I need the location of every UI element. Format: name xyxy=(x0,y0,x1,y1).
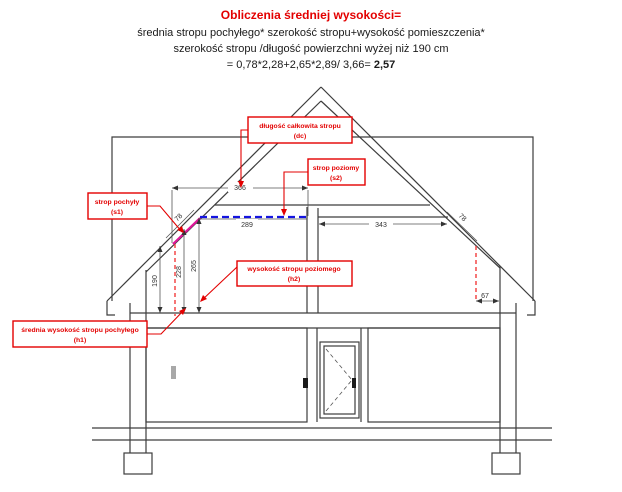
dim-right-offset: 67 xyxy=(476,293,499,304)
ground-floor xyxy=(146,328,500,422)
dim-228: 228 xyxy=(176,266,183,278)
label-h2: wysokość stropu poziomego (h2) xyxy=(237,261,352,286)
label-dc-line2: (dc) xyxy=(294,133,306,140)
label-s2-line1: strop poziomy xyxy=(313,165,360,172)
label-s1: strop pochyły (s1) xyxy=(88,193,147,219)
label-s1-line1: strop pochyły xyxy=(95,199,140,206)
formula-line-1: średnia stropu pochyłego* szerokość stro… xyxy=(0,25,622,41)
label-s1-line2: (s1) xyxy=(111,209,123,216)
dim-366: 366 xyxy=(234,185,246,192)
dim-horizontal-height: 265 xyxy=(191,218,202,313)
dim-height-190: 190 xyxy=(152,246,163,313)
room-right xyxy=(368,328,500,422)
label-h2-line1: wysokość stropu poziomego xyxy=(246,266,340,273)
dim-right-room: 343 xyxy=(319,219,447,229)
formula-expression: = 0,78*2,28+2,65*2,89/ 3,66= xyxy=(227,59,374,71)
wall-mark-right xyxy=(352,378,356,388)
door-handle-mark xyxy=(171,366,176,379)
leader-lines xyxy=(147,130,308,334)
label-s2: strop poziomy (s2) xyxy=(308,159,365,185)
label-h1: średnia wysokość stropu pochyłego (h1) xyxy=(13,321,147,347)
calculation-header: Obliczenia średniej wysokości= średnia s… xyxy=(0,8,622,73)
dim-343: 343 xyxy=(375,222,387,229)
label-dc: długość całkowita stropu (dc) xyxy=(248,117,352,143)
window-swing-symbol xyxy=(326,349,352,411)
dim-190: 190 xyxy=(152,275,159,287)
dim-289: 289 xyxy=(241,222,253,229)
formula-line-2: szerokość stropu /długość powierzchni wy… xyxy=(0,41,622,57)
dim-total-length: 366 xyxy=(172,182,308,243)
label-h1-line1: średnia wysokość stropu pochyłego xyxy=(21,327,138,334)
ground-slab xyxy=(92,428,552,474)
dim-sloped-left: 78 xyxy=(166,210,194,238)
dim-78-right: 78 xyxy=(457,213,468,224)
label-dc-line1: długość całkowita stropu xyxy=(259,123,341,130)
formula-line-3: = 0,78*2,28+2,65*2,89/ 3,66= 2,57 xyxy=(0,57,622,73)
room-left xyxy=(146,328,307,422)
screenshot-root: Obliczenia średniej wysokości= średnia s… xyxy=(0,0,622,492)
footing-right xyxy=(492,453,520,474)
exterior-walls xyxy=(130,266,516,453)
label-s2-line2: (s2) xyxy=(330,175,342,182)
footing-left xyxy=(124,453,152,474)
dim-sloped-right: 78 xyxy=(447,212,477,241)
formula-result: 2,57 xyxy=(374,59,395,71)
house-section-drawing: 366 78 289 343 78 19 xyxy=(0,0,622,492)
label-h1-line2: (h1) xyxy=(74,337,86,344)
dim-horizontal-ceiling: 289 xyxy=(236,219,258,229)
header-title: Obliczenia średniej wysokości= xyxy=(0,8,622,22)
dim-67: 67 xyxy=(481,293,489,300)
label-h2-line2: (h2) xyxy=(288,276,300,283)
wall-mark-left xyxy=(303,378,308,388)
dim-265: 265 xyxy=(191,260,198,272)
